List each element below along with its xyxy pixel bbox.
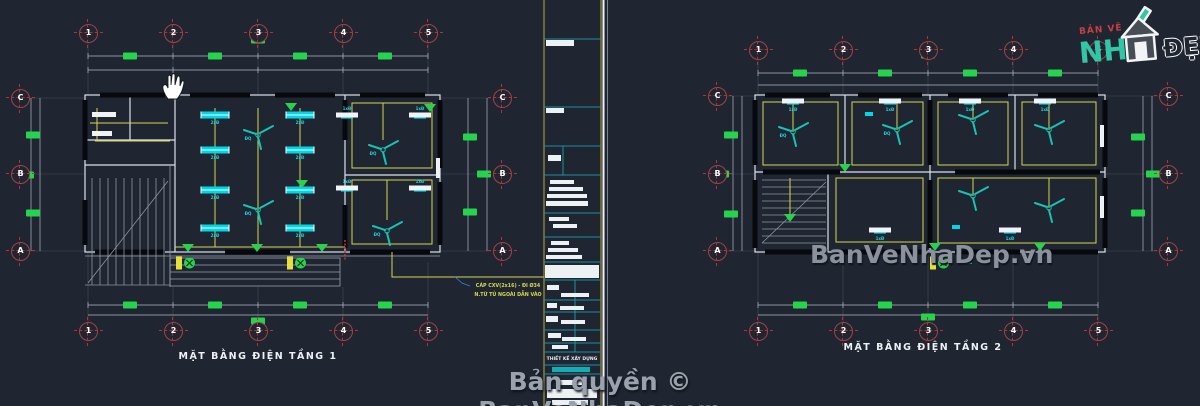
svg-text:1xĐ: 1xĐ	[966, 107, 975, 112]
grid-marker: A	[708, 242, 727, 261]
grid-marker: 2	[164, 24, 183, 43]
grid-marker: C	[493, 89, 512, 108]
logo-accent-text: ĐẸP	[1162, 30, 1200, 63]
svg-text:2xĐ: 2xĐ	[296, 195, 305, 200]
svg-text:ĐQ: ĐQ	[780, 133, 787, 138]
left-plan-dim-lines	[31, 53, 487, 315]
left-plan-stairs	[85, 165, 170, 287]
grid-marker: A	[493, 242, 512, 261]
cad-screenshot: 2xĐ2xĐ 2xĐ2xĐ 2xĐ2xĐ 2xĐ2xĐ 1xĐ1xĐ 1xĐ1x…	[0, 0, 1200, 406]
grid-marker: 2	[164, 322, 183, 341]
grid-marker: 3	[249, 322, 268, 341]
grid-marker: B	[11, 165, 30, 184]
svg-text:2xĐ: 2xĐ	[211, 120, 220, 125]
titleblock-strip: THIẾT KẾ XÂY DỰNG	[544, 0, 608, 406]
svg-text:ĐQ: ĐQ	[374, 232, 381, 237]
grid-marker: 4	[1004, 41, 1023, 60]
grid-marker: 1	[749, 322, 768, 341]
svg-text:ĐQ: ĐQ	[884, 131, 891, 136]
grid-marker: 1	[749, 41, 768, 60]
svg-text:2xĐ: 2xĐ	[296, 155, 305, 160]
svg-text:2xĐ: 2xĐ	[296, 233, 305, 238]
right-plan-projection-lines	[726, 58, 1159, 322]
svg-text:2xĐ: 2xĐ	[211, 233, 220, 238]
grid-marker: B	[1159, 165, 1178, 184]
left-plan-title: MẶT BẰNG ĐIỆN TẦNG 1	[138, 351, 378, 362]
grid-marker: A	[11, 242, 30, 261]
left-plan-fixtures	[92, 103, 440, 270]
svg-text:1xĐ: 1xĐ	[343, 179, 352, 184]
cable-note-leader	[455, 277, 470, 286]
grid-marker: 4	[334, 322, 353, 341]
grid-marker: 5	[419, 24, 438, 43]
grid-marker: 5	[1089, 322, 1108, 341]
grid-marker: 3	[919, 41, 938, 60]
grid-marker: A	[1159, 242, 1178, 261]
grid-marker: 3	[919, 322, 938, 341]
hand-cursor-icon	[160, 72, 186, 100]
grid-marker: 5	[419, 322, 438, 341]
site-logo: BẢN VẼ NH ĐẸP	[1075, 1, 1200, 77]
grid-marker: 2	[834, 322, 853, 341]
svg-text:ĐQ: ĐQ	[245, 211, 252, 216]
svg-text:1xĐ: 1xĐ	[1041, 107, 1050, 112]
svg-text:1xĐ: 1xĐ	[789, 107, 798, 112]
svg-text:2xĐ: 2xĐ	[296, 120, 305, 125]
watermark-text: BanVeNhaDep.vn	[810, 240, 1053, 269]
svg-text:1xĐ: 1xĐ	[343, 106, 352, 111]
grid-marker: B	[708, 165, 727, 184]
svg-text:ĐQ: ĐQ	[245, 136, 252, 141]
svg-text:1xĐ: 1xĐ	[416, 106, 425, 111]
house-icon	[1113, 4, 1166, 66]
grid-marker: C	[1159, 87, 1178, 106]
svg-text:CÁP CXV(2x16) - ĐI Ø34: CÁP CXV(2x16) - ĐI Ø34	[476, 282, 541, 289]
right-plan-stairs	[762, 180, 826, 243]
grid-marker: 1	[79, 322, 98, 341]
grid-marker: 1	[79, 24, 98, 43]
left-plan-porch-steps	[85, 256, 440, 286]
svg-text:ĐQ: ĐQ	[370, 151, 377, 156]
titleblock-firm-label: THIẾT KẾ XÂY DỰNG	[547, 354, 598, 362]
cable-note: CÁP CXV(2x16) - ĐI Ø34 N.TỪ TỦ NGOÀI DẪN…	[474, 282, 541, 298]
grid-marker: C	[11, 89, 30, 108]
grid-marker: B	[493, 165, 512, 184]
svg-text:1xĐ: 1xĐ	[886, 107, 895, 112]
grid-marker: 4	[334, 24, 353, 43]
grid-marker: C	[708, 87, 727, 106]
svg-text:2xĐ: 2xĐ	[211, 155, 220, 160]
grid-marker: 3	[249, 24, 268, 43]
copyright-text: Bản quyền © BanVeNhaDep.vn	[420, 367, 780, 406]
svg-text:1xĐ: 1xĐ	[416, 179, 425, 184]
grid-marker: 2	[834, 41, 853, 60]
svg-text:2xĐ: 2xĐ	[211, 195, 220, 200]
grid-marker: 4	[1004, 322, 1023, 341]
right-plan-title: MẶT BẰNG ĐIỆN TẦNG 2	[803, 342, 1043, 353]
left-plan-fixture-labels: 2xĐ2xĐ 2xĐ2xĐ 2xĐ2xĐ 2xĐ2xĐ 1xĐ1xĐ 1xĐ1x…	[211, 106, 425, 238]
svg-text:N.TỪ TỦ NGOÀI DẪN VÀO: N.TỪ TỦ NGOÀI DẪN VÀO	[474, 290, 541, 298]
